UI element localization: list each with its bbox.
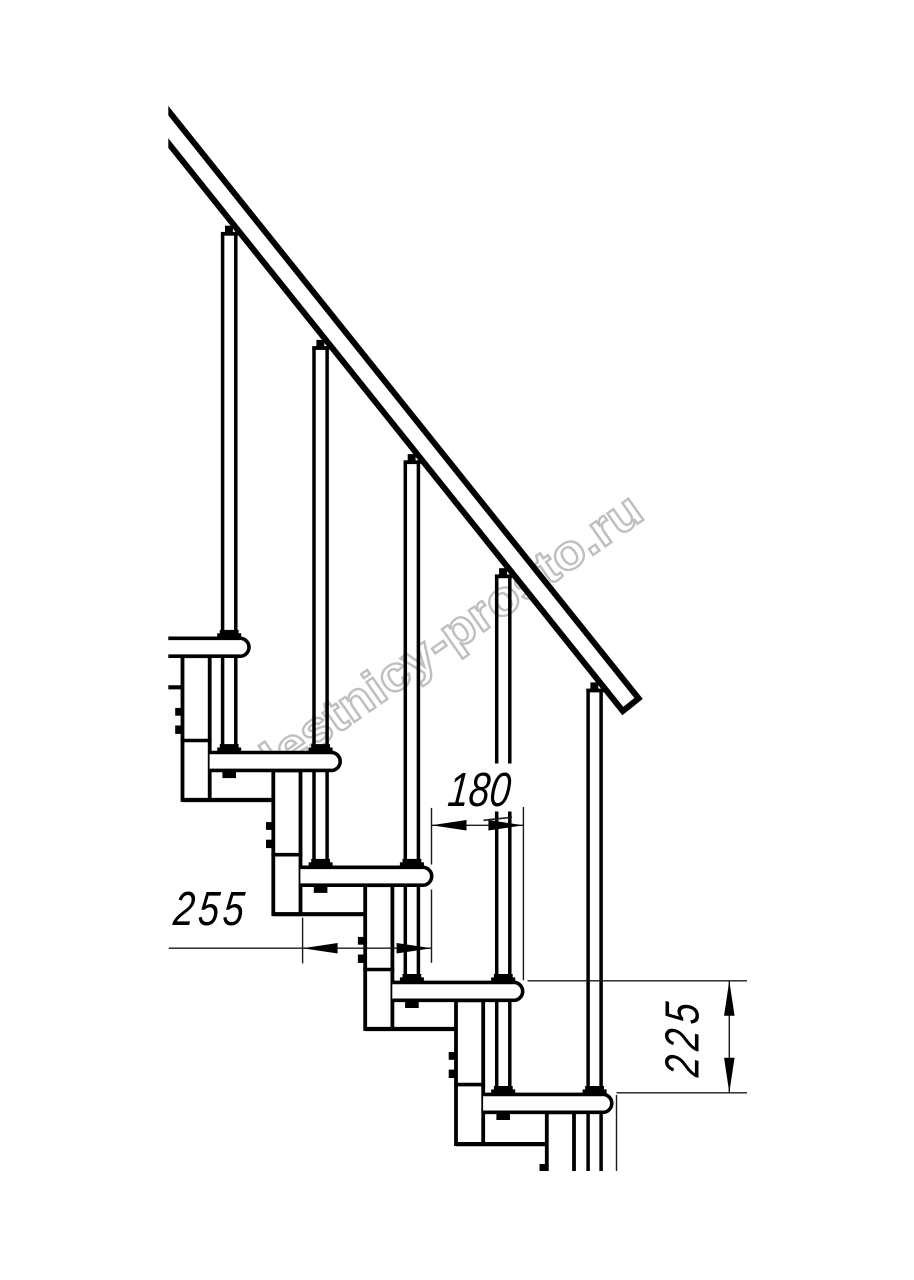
svg-text:180: 180 xyxy=(446,764,514,817)
svg-text:255: 255 xyxy=(170,883,247,936)
svg-text:225: 225 xyxy=(656,999,709,1079)
